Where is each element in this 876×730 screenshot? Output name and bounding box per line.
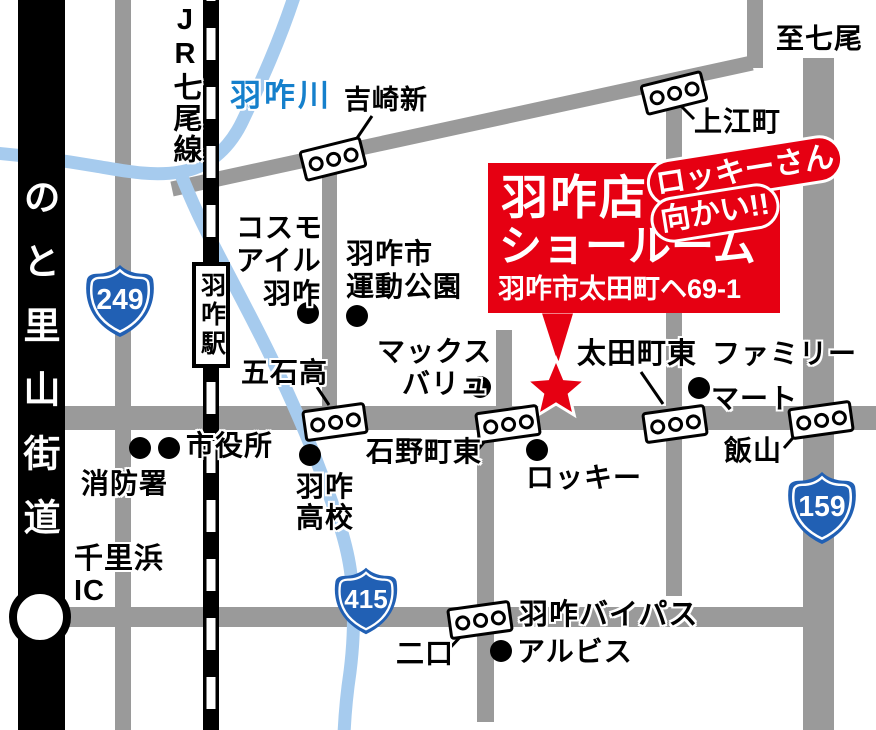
route-shield-249: 249 xyxy=(83,263,157,339)
jr-line-label: JR七尾線 xyxy=(164,4,206,165)
label-city-hall: 市役所 xyxy=(186,431,273,461)
label-to-nanao: 至七尾 xyxy=(776,24,863,54)
poi-dot-high-school xyxy=(299,444,321,466)
label-ishino-higashi: 石野町東 xyxy=(366,437,482,467)
label-kaminae: 上江町 xyxy=(694,107,781,137)
label-high-school: 羽咋高校 xyxy=(296,471,354,533)
label-fire-station: 消防署 xyxy=(81,469,168,499)
road-bypass-horizontal xyxy=(63,607,815,627)
hakui-station-box: 羽咋駅 xyxy=(192,262,230,368)
label-chirihama-ic: 千里浜IC xyxy=(74,543,164,607)
access-map: のと里山街道 JR七尾線 羽咋川 羽咋駅 249 415 159 吉崎新 至七尾… xyxy=(0,0,876,730)
poi-dot-fire-station xyxy=(129,437,151,459)
poi-dot-city-hall xyxy=(158,437,180,459)
route-shield-415: 415 xyxy=(332,566,400,636)
label-cosmo: コスモアイル羽咋 xyxy=(236,211,321,310)
label-futakuchi: 二口 xyxy=(396,639,454,669)
label-maxvalu-1: マックス xyxy=(377,337,492,367)
interchange-circle xyxy=(13,590,67,644)
label-hakui-bypass: 羽咋バイパス xyxy=(519,600,698,631)
river-label: 羽咋川 xyxy=(230,70,332,115)
svg-text:159: 159 xyxy=(798,490,845,522)
label-iiyama: 飯山 xyxy=(724,436,782,466)
label-familymart-2: マート xyxy=(711,384,798,414)
road-vertical-west xyxy=(115,0,131,730)
label-goseki: 五石高 xyxy=(241,358,328,388)
banner-address: 羽咋市太田町ヘ69-1 xyxy=(498,276,741,303)
callout-text-2: 向かい!! xyxy=(658,190,771,237)
svg-text:415: 415 xyxy=(344,584,387,614)
poi-dot-albis xyxy=(490,640,512,662)
label-rocky: ロッキー xyxy=(526,463,642,493)
svg-text:249: 249 xyxy=(96,283,143,315)
road-vertical-otamachi xyxy=(666,78,682,596)
poi-dot-sports-park xyxy=(346,305,368,327)
label-maxvalu-2: バリュ xyxy=(402,369,489,399)
label-yoshizaki: 吉崎新 xyxy=(344,86,428,115)
poi-dot-rocky xyxy=(526,439,548,461)
poi-dot-familymart xyxy=(688,377,710,399)
route-shield-159: 159 xyxy=(783,470,861,546)
expressway-label: のと里山街道 xyxy=(20,178,57,562)
label-albis: アルビス xyxy=(517,637,633,667)
label-sports-park: 羽咋市運動公園 xyxy=(346,237,462,303)
banner-store-name: 羽咋店 xyxy=(501,174,648,221)
hakui-station-label: 羽咋駅 xyxy=(199,272,224,359)
label-familymart-1: ファミリー xyxy=(712,339,857,369)
label-otamachi-higashi: 太田町東 xyxy=(577,339,697,370)
